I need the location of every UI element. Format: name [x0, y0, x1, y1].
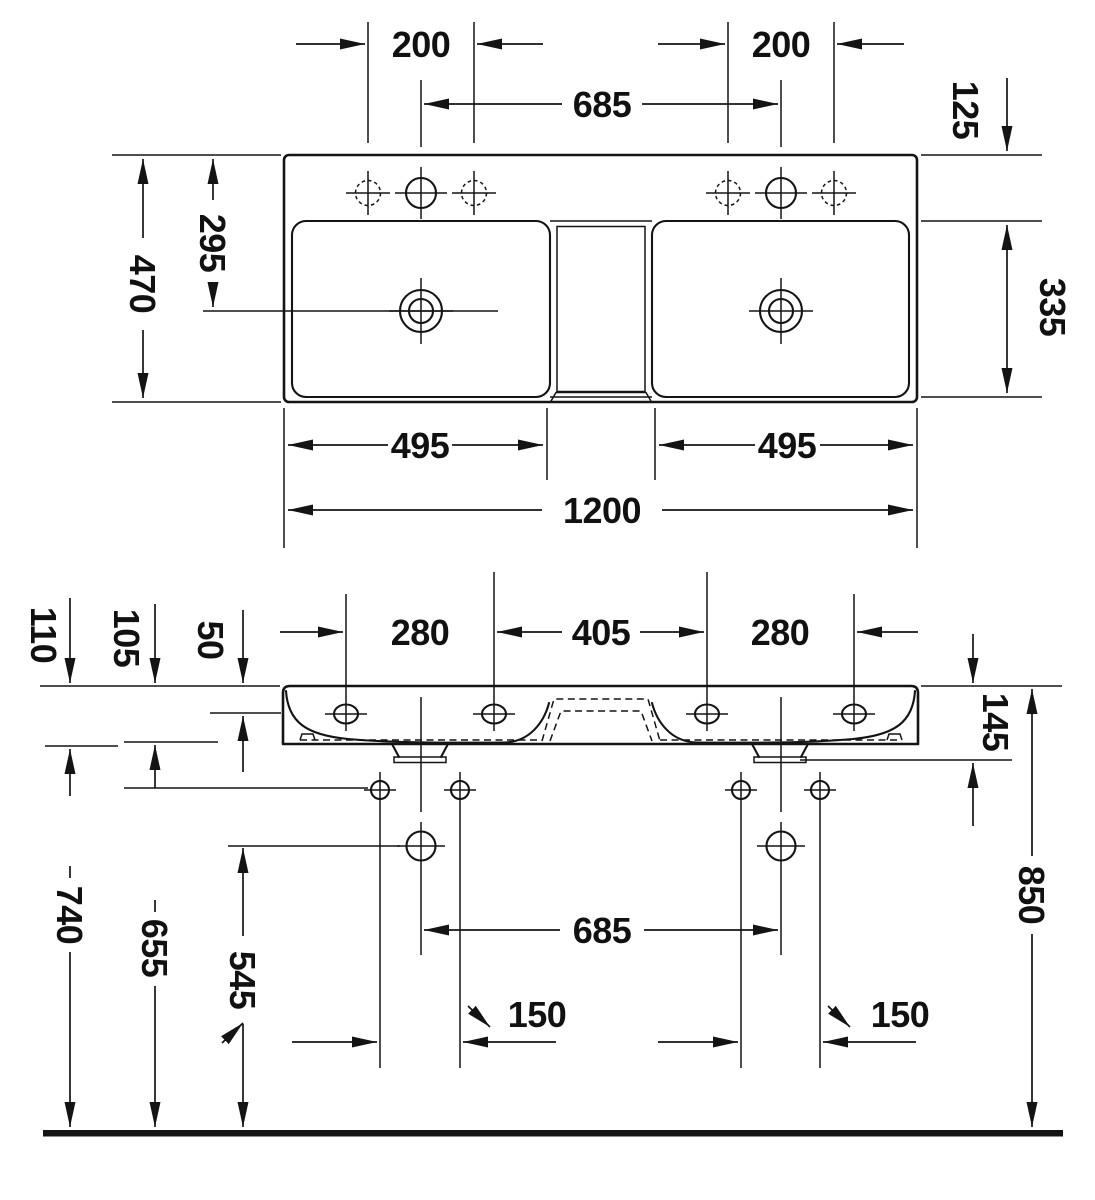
dim-front-rim-to-outlet: 145	[975, 693, 1016, 752]
front-drain-outlet-left	[392, 697, 448, 812]
front-bowl-curve-right	[652, 691, 915, 743]
dim-front-fixing-right: 150	[871, 994, 930, 1035]
leader-arrow-150-left	[468, 1006, 490, 1027]
dim-plan-total-width: 1200	[563, 490, 641, 531]
dim-front-height-total: 110	[23, 607, 64, 664]
front-supply-holes	[397, 832, 805, 861]
dim-front-supply-centres: 685	[573, 910, 632, 951]
front-bowl-curve-left	[286, 691, 549, 743]
dim-front-rim-height: 850	[1011, 866, 1052, 925]
front-hidden-lines	[300, 699, 902, 741]
leader-arrow-150-right	[828, 1006, 850, 1027]
dim-plan-rear-to-drain: 295	[192, 214, 233, 273]
dim-front-rim-to-ledge: 50	[190, 620, 231, 659]
washbasin-dimension-drawing: 200 200 685 470 295 125 335	[0, 0, 1095, 1200]
dim-front-holes-mid: 405	[572, 612, 631, 653]
plan-tap-holes-left	[346, 167, 496, 219]
dim-plan-tap-pitch-left: 200	[392, 24, 451, 65]
front-drain-outlet-right	[752, 697, 808, 812]
front-fixing-holes	[364, 781, 836, 799]
plan-drain-right	[749, 278, 813, 344]
dim-front-holes-right: 280	[751, 612, 810, 653]
dim-plan-basin-depth: 335	[1032, 278, 1073, 337]
dim-plan-rear-to-basin: 125	[945, 81, 986, 140]
dim-plan-depth: 470	[122, 255, 163, 314]
technical-drawing-page: 200 200 685 470 295 125 335	[0, 0, 1095, 1200]
leader-arrow-545	[222, 1023, 243, 1043]
plan-centre-channel	[550, 221, 652, 402]
dim-front-floor-fixing: 655	[134, 919, 175, 978]
plan-tap-holes-right	[706, 167, 856, 219]
front-body-outline	[283, 686, 918, 744]
dim-front-floor-underside: 740	[49, 886, 90, 945]
dim-front-holes-left: 280	[391, 612, 450, 653]
dim-front-fixing-left: 150	[508, 994, 567, 1035]
front-dimensions: 280 405 280 110 105 50 145 850	[23, 598, 1052, 1127]
dim-plan-tap-pitch-right: 200	[752, 24, 811, 65]
dim-front-floor-supply: 545	[222, 951, 263, 1010]
floor-line	[43, 1130, 1063, 1137]
front-view: 280 405 280 110 105 50 145 850	[23, 572, 1062, 1127]
front-face-holes	[325, 697, 875, 731]
plan-view: 200 200 685 470 295 125 335	[112, 22, 1073, 548]
dim-front-height-inner: 105	[106, 609, 147, 668]
plan-dimensions: 200 200 685 470 295 125 335	[122, 24, 1073, 531]
dim-plan-tap-centres: 685	[573, 84, 632, 125]
dim-plan-basin-width-right: 495	[758, 425, 817, 466]
dim-plan-basin-width-left: 495	[391, 425, 450, 466]
